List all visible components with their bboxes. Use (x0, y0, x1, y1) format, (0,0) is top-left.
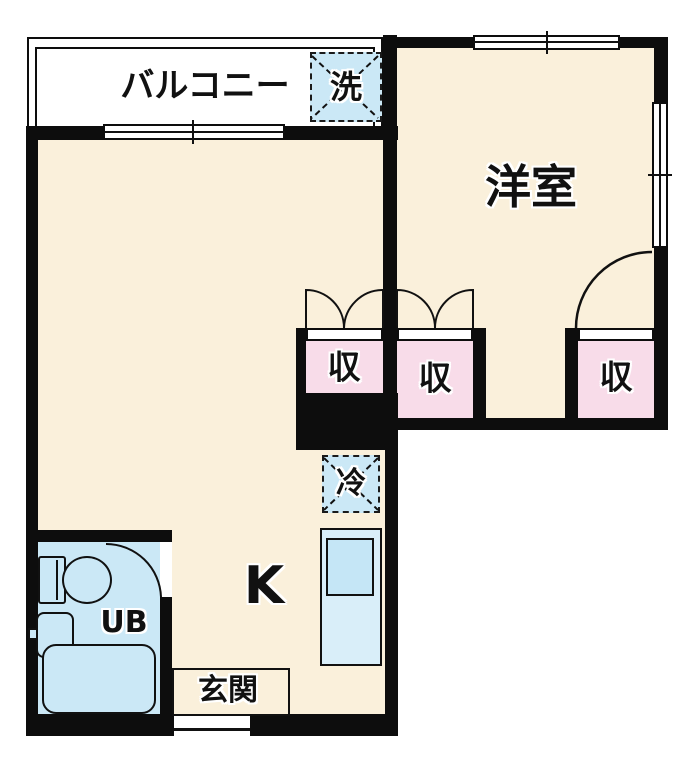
wall-storage-right-left (565, 328, 578, 430)
unit-bath-label: UB (100, 608, 147, 638)
wall-divider-vertical (383, 35, 397, 393)
balcony-label: バルコニー (120, 69, 289, 103)
wall-storage-middle-right (473, 328, 486, 430)
floor-plan: バルコニー 洗 洋室 収 収 収 冷 K UB 玄関 (0, 0, 700, 766)
entrance-door-line (174, 728, 250, 731)
window-balcony (103, 124, 285, 140)
toilet-bowl-icon (62, 556, 112, 604)
window-western-top (473, 35, 620, 50)
western-room-label: 洋室 (485, 164, 577, 210)
washer-label: 洗 (330, 71, 362, 103)
storage-right-label: 収 (600, 361, 633, 394)
entrance-label: 玄関 (198, 676, 258, 706)
storage-left-label: 収 (328, 351, 361, 384)
bath-door-gap (160, 542, 172, 597)
wall-bath-top (26, 530, 172, 542)
kitchen-label: K (244, 560, 284, 612)
bathtub-icon (42, 644, 156, 714)
window-western-right (652, 102, 668, 248)
entrance-door-gap (174, 716, 250, 736)
wall-storage-left-side (296, 328, 306, 393)
storage-middle-door-strip (397, 328, 473, 341)
storage-right-door-strip (578, 328, 654, 341)
wall-bath-right (160, 597, 172, 715)
storage-left-door-strip (306, 328, 383, 341)
storage-middle-label: 収 (419, 362, 452, 395)
refrigerator-label: 冷 (336, 469, 366, 499)
kitchen-sink-icon (326, 538, 374, 596)
wall-east-bottom (383, 418, 668, 430)
